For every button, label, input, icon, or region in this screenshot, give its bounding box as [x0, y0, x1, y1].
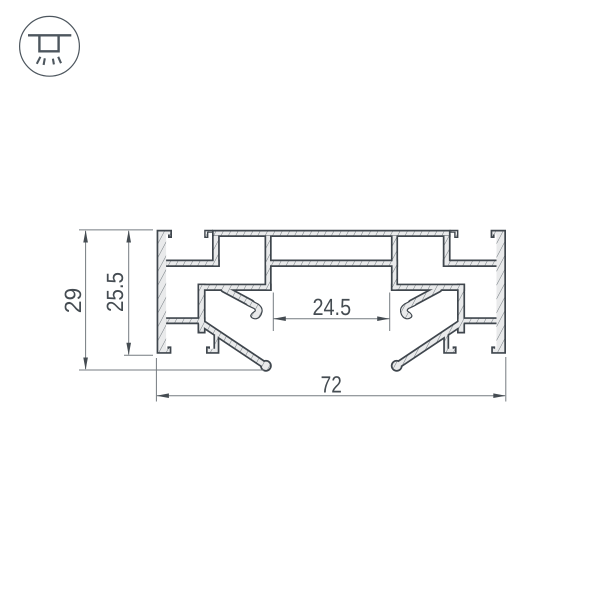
svg-text:24.5: 24.5 — [313, 294, 352, 320]
svg-text:72: 72 — [321, 371, 342, 397]
svg-text:25.5: 25.5 — [102, 272, 128, 312]
svg-text:29: 29 — [60, 288, 86, 314]
